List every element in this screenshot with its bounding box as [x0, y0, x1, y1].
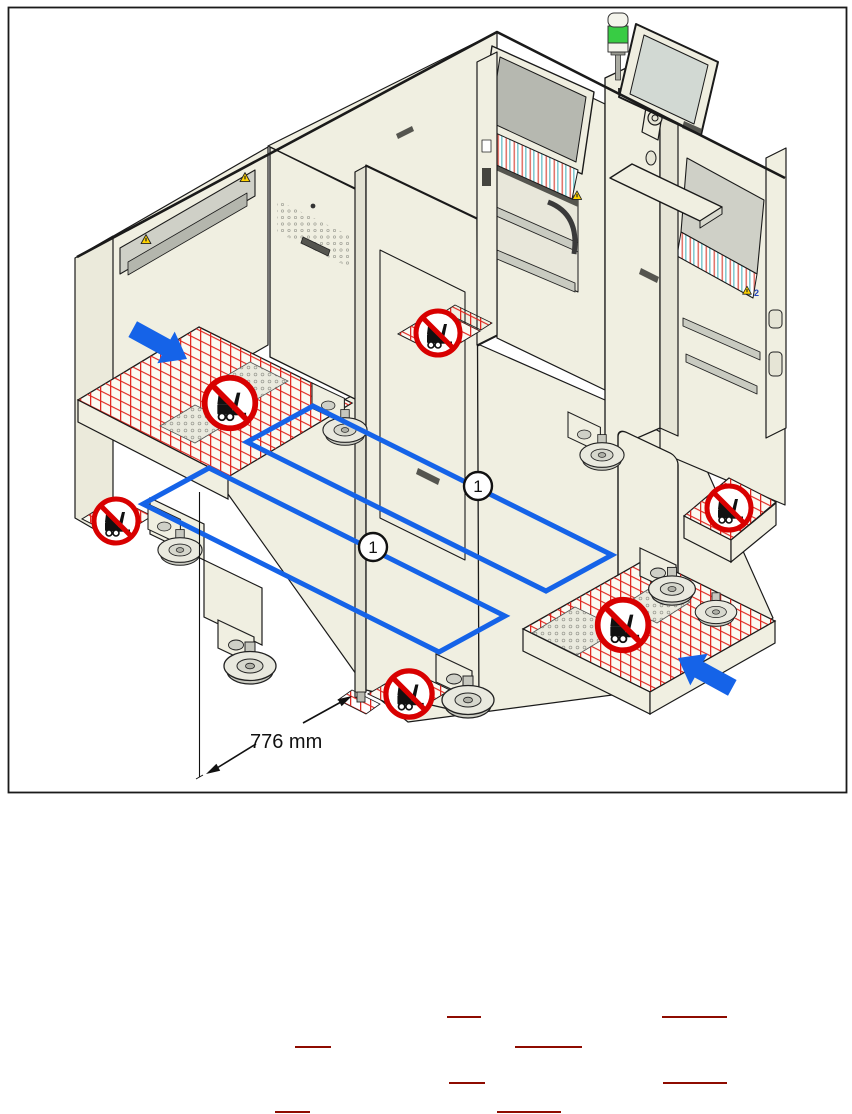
link-underline[interactable] [662, 1016, 727, 1018]
feeder-badge: 2 [754, 288, 759, 298]
callout-label: 1 [473, 477, 482, 496]
forklift-prohibited-icon [94, 499, 138, 543]
link-underline[interactable] [275, 1111, 310, 1113]
pillar-latch-1 [769, 310, 782, 328]
tower-oval-hole [646, 151, 656, 165]
pillar-notch [482, 168, 491, 186]
dimension-arrowhead [206, 764, 220, 774]
front-pillar [477, 52, 497, 345]
door-lock [311, 204, 316, 209]
left-module-door [270, 147, 357, 400]
forklift-prohibited-icon [598, 600, 649, 651]
link-underline[interactable] [295, 1046, 331, 1048]
forklift-prohibited-icon [707, 486, 751, 530]
edge-clip [357, 692, 365, 702]
pillar-latch-2 [769, 352, 782, 376]
forklift-prohibited-icon [205, 378, 256, 429]
forklift-prohibited-icon [416, 311, 460, 355]
link-underline[interactable] [515, 1046, 582, 1048]
link-underline[interactable] [447, 1016, 481, 1018]
far-right-pillar [766, 148, 786, 438]
figure-canvas: 2 [0, 0, 852, 1114]
pillar-cutout [482, 140, 491, 152]
link-underline[interactable] [497, 1111, 561, 1113]
lamp-green-segment [608, 26, 628, 43]
link-underline[interactable] [663, 1082, 727, 1084]
dimension-label: 776 mm [250, 731, 322, 753]
callout-label: 1 [368, 538, 377, 557]
footer-link-underlines [275, 1016, 727, 1113]
link-underline[interactable] [449, 1082, 485, 1084]
forklift-prohibited-icon [386, 671, 432, 717]
callout-1a: 1 [464, 472, 492, 500]
callout-1b: 1 [359, 533, 387, 561]
manual-page: 2 [0, 0, 852, 1114]
